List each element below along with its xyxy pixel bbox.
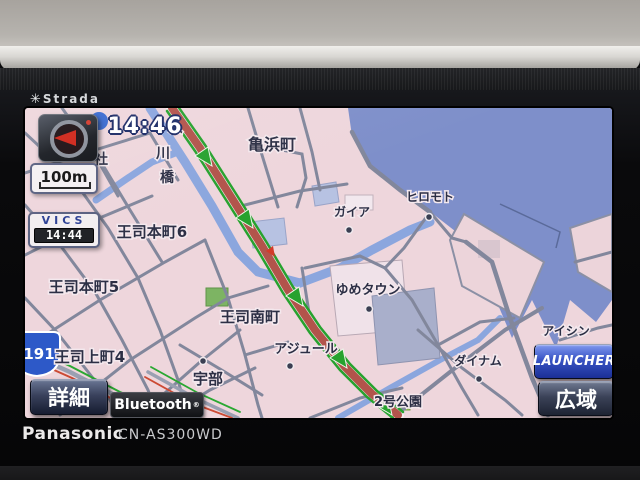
- wide-zoom-button[interactable]: 広域: [538, 381, 612, 416]
- map-label: 橋: [160, 169, 175, 186]
- map-label: ヒロモト: [406, 190, 454, 204]
- map-label: 宇部: [193, 370, 223, 388]
- map-label: ゆめタウン: [335, 283, 400, 298]
- map-label: 王司本町5: [49, 278, 119, 296]
- map-label: ガイア: [334, 204, 370, 219]
- map-label: アジュール: [274, 342, 338, 357]
- compass-dot-icon: [86, 120, 91, 125]
- dashboard-trim: [0, 0, 640, 50]
- vent-grille: [0, 68, 640, 92]
- bluetooth-wordmark: Bluetooth: [114, 397, 192, 413]
- registered-mark: ®: [193, 401, 200, 409]
- map-label: アイシン: [542, 324, 589, 338]
- map-scale-button[interactable]: 100m: [30, 163, 98, 194]
- strada-logo: ✳Strada: [30, 92, 100, 107]
- bluetooth-badge: Bluetooth®: [110, 392, 204, 418]
- map[interactable]: 191 亀浜町 社 川 橋 入 王司本町6 王司本町5 王司南町 ゆめタウン ア…: [25, 108, 612, 418]
- route-number: 191: [25, 345, 55, 363]
- compass-arrow-icon: [54, 130, 76, 146]
- vics-label: VICS: [30, 214, 98, 228]
- map-label: 王司本町6: [117, 223, 187, 241]
- compass-button[interactable]: [38, 114, 98, 162]
- map-label: ダイナム: [454, 353, 501, 368]
- launcher-button[interactable]: LAUNCHER: [534, 344, 612, 379]
- map-label: 2号公園: [374, 394, 422, 410]
- nav-screen[interactable]: 191 亀浜町 社 川 橋 入 王司本町6 王司本町5 王司南町 ゆめタウン ア…: [25, 108, 612, 418]
- map-label: 亀浜町: [248, 135, 296, 154]
- scale-bracket-icon: [39, 182, 91, 189]
- vics-indicator: VICS 14:44: [28, 212, 100, 248]
- bottom-trim: [0, 466, 640, 480]
- map-label: 川: [155, 146, 170, 162]
- clock: 14:46: [93, 114, 197, 139]
- panasonic-logo: Panasonic: [22, 424, 123, 444]
- strada-star-icon: ✳: [30, 92, 41, 107]
- model-number: CN-AS300WD: [118, 427, 223, 443]
- dashboard-silver-lip: [0, 46, 640, 70]
- detail-zoom-button[interactable]: 詳細: [30, 379, 108, 415]
- vics-time: 14:44: [34, 228, 94, 243]
- map-label: 王司南町: [220, 308, 280, 326]
- map-label: 王司上町4: [55, 348, 125, 366]
